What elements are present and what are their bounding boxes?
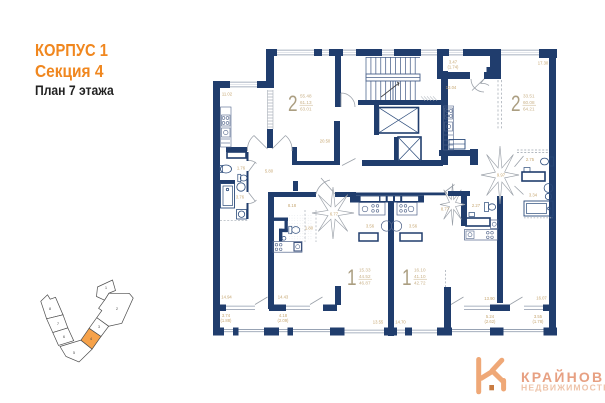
svg-text:1: 1 — [402, 266, 412, 291]
svg-text:1.76: 1.76 — [237, 166, 246, 171]
svg-text:3: 3 — [98, 325, 100, 329]
svg-text:13.55: 13.55 — [373, 320, 384, 325]
svg-text:55.48: 55.48 — [300, 94, 312, 99]
svg-text:1.80: 1.80 — [305, 226, 314, 231]
svg-text:17.30: 17.30 — [538, 61, 549, 66]
svg-text:15.33: 15.33 — [359, 268, 371, 273]
svg-text:3.56: 3.56 — [366, 224, 375, 229]
svg-text:42.72: 42.72 — [414, 281, 426, 286]
svg-text:КОРПУС 1: КОРПУС 1 — [35, 41, 108, 61]
svg-text:8: 8 — [49, 307, 51, 311]
svg-text:33.51: 33.51 — [523, 94, 535, 99]
svg-text:9.97: 9.97 — [497, 173, 506, 178]
svg-text:5: 5 — [73, 351, 75, 355]
svg-text:3.56: 3.56 — [409, 224, 418, 229]
svg-text:1: 1 — [105, 286, 107, 290]
svg-text:6.77: 6.77 — [330, 212, 339, 217]
svg-text:61.13: 61.13 — [300, 100, 312, 105]
svg-text:41.10: 41.10 — [414, 274, 426, 279]
svg-text:3.34: 3.34 — [529, 193, 538, 198]
svg-text:(2.62): (2.62) — [485, 319, 497, 324]
svg-text:7: 7 — [57, 322, 59, 326]
svg-text:8.18: 8.18 — [288, 203, 297, 208]
svg-text:8.77: 8.77 — [441, 207, 450, 212]
svg-text:46.87: 46.87 — [359, 281, 371, 286]
svg-text:63.01: 63.01 — [300, 107, 312, 112]
svg-text:2: 2 — [511, 92, 521, 117]
svg-text:11.02: 11.02 — [222, 92, 233, 97]
svg-text:64.21: 64.21 — [523, 107, 535, 112]
svg-text:14.70: 14.70 — [395, 320, 406, 325]
svg-text:(1.78): (1.78) — [533, 319, 545, 324]
svg-text:16.10: 16.10 — [414, 268, 426, 273]
svg-text:16.07: 16.07 — [536, 296, 547, 301]
svg-text:План 7 этажа: План 7 этажа — [35, 82, 115, 98]
svg-text:1: 1 — [347, 266, 357, 291]
svg-text:3.76: 3.76 — [236, 195, 245, 200]
svg-text:13.90: 13.90 — [484, 296, 495, 301]
svg-text:14.94: 14.94 — [221, 295, 232, 300]
svg-text:14.43: 14.43 — [278, 295, 289, 300]
svg-text:44.52: 44.52 — [359, 274, 371, 279]
svg-text:НЕДВИЖИМОСТЬ: НЕДВИЖИМОСТЬ — [521, 383, 605, 393]
svg-text:2.75: 2.75 — [526, 157, 535, 162]
svg-text:Секция 4: Секция 4 — [35, 61, 104, 81]
svg-text:2: 2 — [116, 307, 118, 311]
svg-text:13.04: 13.04 — [446, 85, 457, 90]
svg-text:60.08: 60.08 — [523, 100, 535, 105]
svg-text:5.80: 5.80 — [265, 169, 274, 174]
svg-text:6: 6 — [63, 335, 65, 339]
svg-text:(1.88): (1.88) — [221, 318, 233, 323]
svg-text:2.27: 2.27 — [472, 203, 481, 208]
svg-text:(2.09): (2.09) — [278, 318, 290, 323]
svg-text:4: 4 — [90, 337, 92, 341]
svg-text:20.50: 20.50 — [320, 139, 331, 144]
svg-text:2: 2 — [288, 92, 298, 117]
svg-text:(1.74): (1.74) — [448, 65, 460, 70]
